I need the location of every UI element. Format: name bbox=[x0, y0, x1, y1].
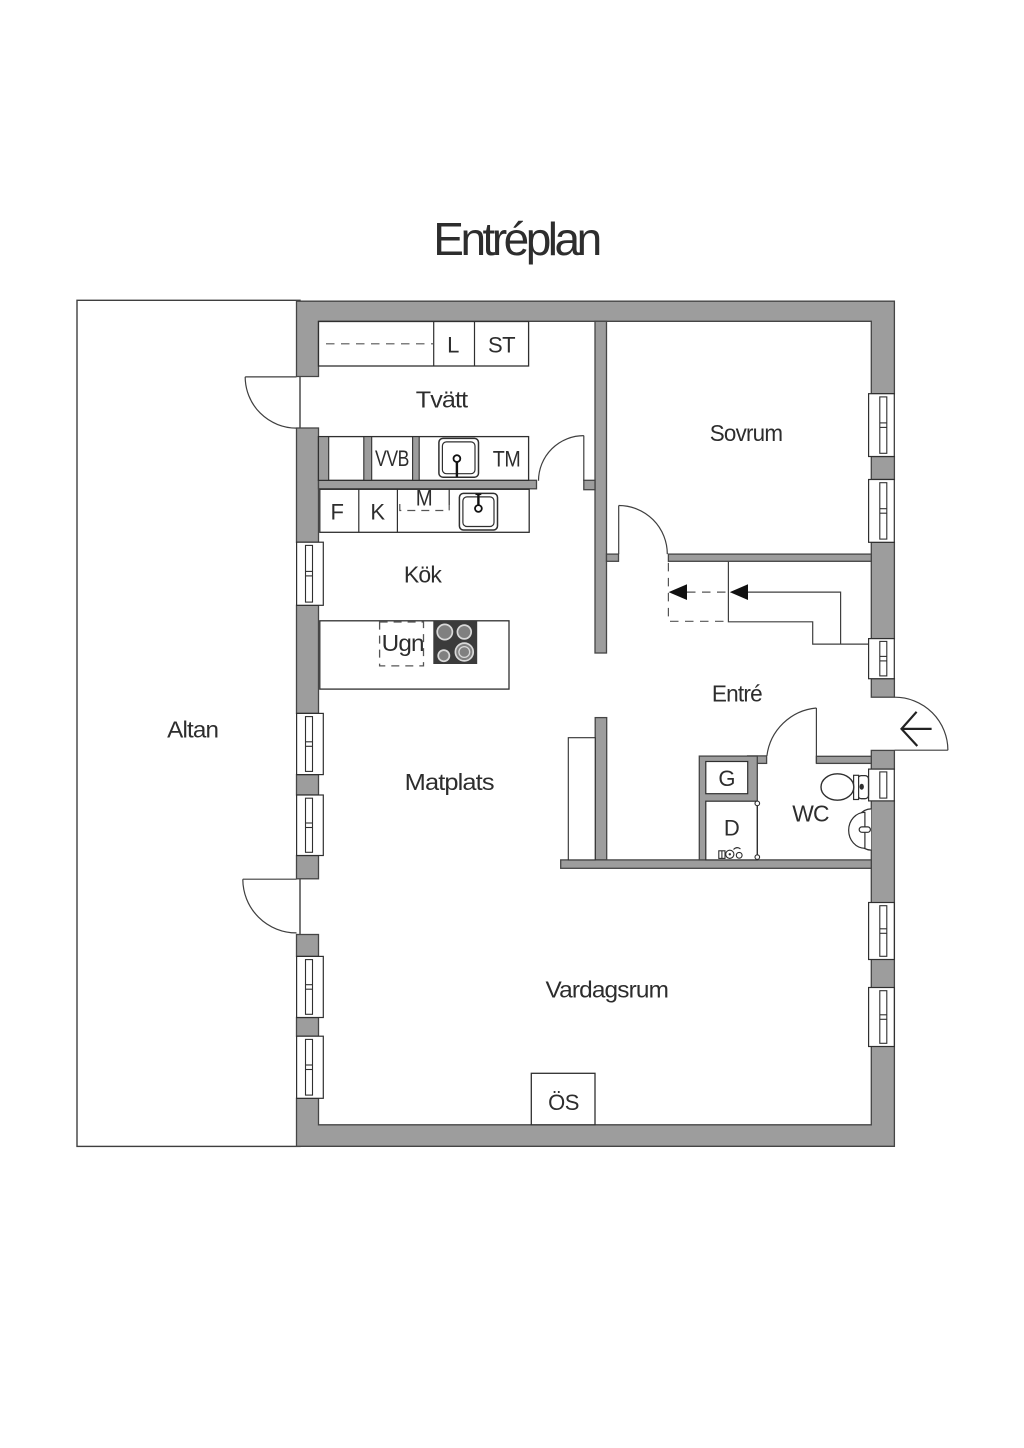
svg-text:Vardagsrum: Vardagsrum bbox=[546, 976, 669, 1002]
svg-text:Tvätt: Tvätt bbox=[416, 387, 469, 413]
svg-text:Entré: Entré bbox=[712, 680, 762, 706]
svg-text:Altan: Altan bbox=[167, 717, 218, 743]
svg-text:L: L bbox=[447, 333, 459, 358]
svg-text:Entréplan: Entréplan bbox=[433, 213, 599, 265]
svg-text:ÖS: ÖS bbox=[548, 1090, 579, 1115]
svg-text:Ugn: Ugn bbox=[382, 630, 424, 656]
svg-text:WC: WC bbox=[792, 801, 829, 827]
svg-text:M: M bbox=[416, 486, 433, 511]
svg-text:Sovrum: Sovrum bbox=[710, 420, 783, 446]
svg-text:Matplats: Matplats bbox=[405, 769, 494, 795]
svg-text:TM: TM bbox=[493, 447, 521, 472]
svg-text:G: G bbox=[718, 766, 735, 791]
svg-text:F: F bbox=[331, 499, 344, 524]
svg-text:VVB: VVB bbox=[375, 446, 409, 471]
svg-text:Kök: Kök bbox=[404, 561, 443, 587]
svg-text:ST: ST bbox=[488, 333, 515, 358]
svg-text:D: D bbox=[724, 816, 739, 841]
svg-text:K: K bbox=[370, 499, 385, 524]
